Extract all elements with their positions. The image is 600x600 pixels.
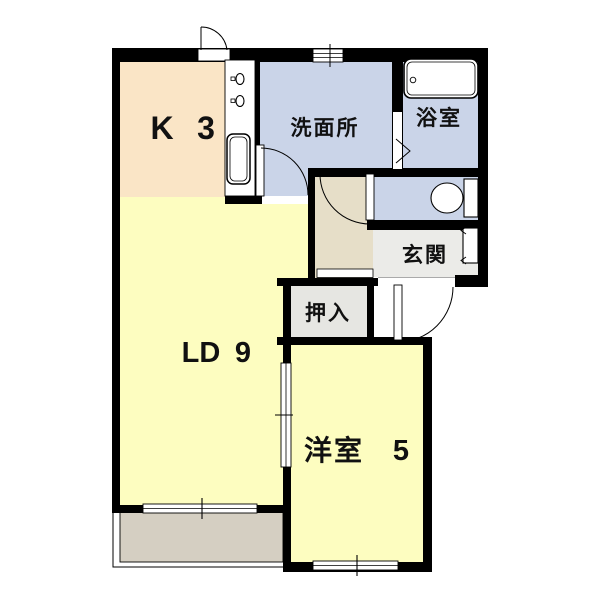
toilet-bowl	[431, 183, 463, 213]
bathtub-faucet	[410, 77, 416, 83]
washroom-label: 洗面所	[291, 117, 360, 140]
western-room-size-label: 5	[393, 435, 409, 467]
kitchen-label: K	[150, 110, 173, 146]
door-leaf	[366, 174, 374, 220]
door-swing-arc	[398, 287, 453, 342]
hallway-step-edge	[317, 269, 373, 278]
wall-segment	[478, 48, 488, 287]
kitchen-sink-icon	[227, 134, 250, 184]
door-leaf	[256, 145, 264, 196]
balcony-deck	[120, 512, 283, 562]
front-door-icon	[461, 227, 478, 264]
balcony	[113, 512, 288, 567]
wall-segment	[112, 48, 120, 512]
bathtub-icon	[404, 59, 478, 98]
wall-segment	[308, 168, 315, 286]
wall-segment	[308, 168, 488, 177]
burner-knob	[231, 77, 235, 81]
burner	[236, 74, 244, 85]
living-dining-floor-upper	[120, 197, 308, 278]
kitchen-service-door-swing	[201, 27, 227, 50]
closet-label: 押入	[305, 301, 351, 325]
burner-knob	[231, 99, 235, 103]
floor-plan: K 3 洗面所 浴室 玄関 押入 LD 9 洋室 5	[0, 0, 600, 600]
living-dining-label: LD	[182, 337, 221, 369]
kitchen-service-door-panel	[198, 49, 230, 61]
washroom-door-opening	[262, 196, 308, 204]
wall-segment	[277, 278, 378, 286]
wall-segment	[455, 275, 488, 287]
entrance-label: 玄関	[402, 243, 448, 267]
kitchen-size-label: 3	[197, 110, 215, 146]
sink-inner	[230, 137, 247, 181]
living-dining-floor-lower	[120, 278, 283, 505]
wall-segment	[423, 337, 432, 572]
toilet-tank	[464, 179, 478, 217]
bathroom-label: 浴室	[416, 106, 462, 130]
floor-plan-canvas: K 3 洗面所 浴室 玄関 押入 LD 9 洋室 5	[0, 0, 600, 600]
western-room-label: 洋室	[304, 434, 364, 466]
door-leaf	[394, 285, 402, 340]
wall-segment	[283, 286, 291, 337]
door-swing-arc	[201, 27, 227, 50]
entrance-step-opening	[378, 277, 455, 286]
window-frame	[313, 49, 343, 62]
burner	[236, 96, 244, 107]
living-room-door-swing	[394, 285, 453, 342]
wall-segment	[367, 286, 374, 337]
living-dining-size-label: 9	[235, 337, 251, 369]
